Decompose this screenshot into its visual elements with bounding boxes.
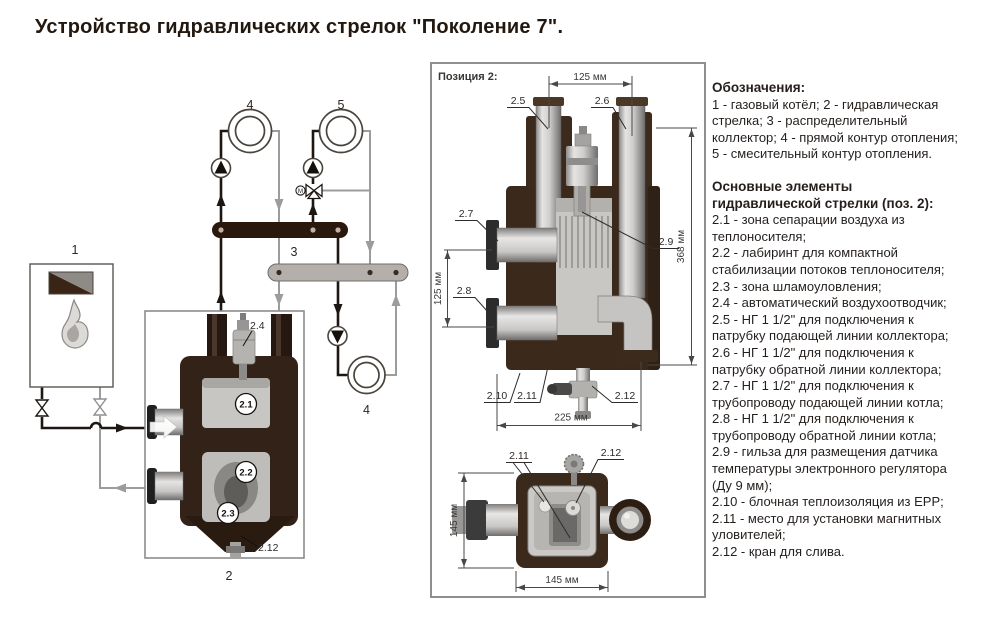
legend-item: 2.4 - автоматический воздухоотводчик; <box>712 295 964 312</box>
boiler-label: 1 <box>72 243 79 257</box>
callout-2-11: 2.11 <box>517 390 537 402</box>
circuit-4-top-label: 4 <box>247 98 254 112</box>
bottom-view <box>452 455 651 569</box>
collector-label: 3 <box>291 245 298 259</box>
circuit-4-bottom-label: 4 <box>363 403 370 417</box>
panel-title: Позиция 2: <box>438 71 498 83</box>
callout-2-12-front: 2.12 <box>615 390 636 402</box>
dim-225-bottom: 225 мм <box>554 413 587 424</box>
callout-2-12-bottom: 2.12 <box>601 447 622 459</box>
drain-valve-icon <box>547 368 597 419</box>
legend-heading-designations: Обозначения: <box>712 80 964 97</box>
legend-item: 2.2 - лабиринт для компактной стабилизац… <box>712 245 964 278</box>
dim-368-right: 368 мм <box>676 230 687 263</box>
legend-item: 2.11 - место для установки магнитных уло… <box>712 511 964 544</box>
callout-2-8: 2.8 <box>457 285 472 297</box>
callout-2-12: 2.12 <box>258 542 279 554</box>
supply-manifold <box>212 222 348 238</box>
legend-item: 2.12 - кран для слива. <box>712 544 964 561</box>
separator-label: 2 <box>226 569 233 583</box>
legend-heading-elements: Основные элементы гидравлической стрелки… <box>712 179 964 212</box>
legend-item: 2.9 - гильза для размещения датчика темп… <box>712 444 964 494</box>
valve-motor-label: М <box>298 189 303 195</box>
callout-2-5: 2.5 <box>511 95 526 107</box>
valve-icon <box>36 399 106 416</box>
radiator-circuit-5 <box>320 110 363 153</box>
page-title: Устройство гидравлических стрелок "Покол… <box>35 16 563 39</box>
callout-2-3: 2.3 <box>221 509 234 520</box>
legend-designations-text: 1 - газовый котёл; 2 - гидравлическая ст… <box>712 97 964 163</box>
callout-2-2: 2.2 <box>239 468 252 479</box>
legend-item: 2.10 - блочная теплоизоляция из EPP; <box>712 494 964 511</box>
callout-2-9: 2.9 <box>659 236 674 248</box>
legend-item: 2.6 - НГ 1 1/2" для подключения к патруб… <box>712 345 964 378</box>
system-schematic: 3 <box>0 58 430 603</box>
radiator-circuit-bottom-4 <box>348 357 385 394</box>
legend-item: 2.3 - зона шламоуловления; <box>712 279 964 296</box>
drawing-panel: Позиция 2: <box>430 62 706 598</box>
callout-2-6: 2.6 <box>595 95 610 107</box>
technical-drawing: Позиция 2: <box>432 64 704 596</box>
callout-2-11-bottom: 2.11 <box>509 450 529 462</box>
legend: Обозначения: 1 - газовый котёл; 2 - гидр… <box>712 80 964 561</box>
callout-2-7: 2.7 <box>459 208 474 220</box>
return-collector <box>268 264 408 281</box>
dim-125-top: 125 мм <box>573 72 606 83</box>
dim-145-left: 145 мм <box>449 504 460 537</box>
dim-145-bottom: 145 мм <box>545 575 578 586</box>
legend-item: 2.5 - НГ 1 1/2" для подключения к патруб… <box>712 312 964 345</box>
dim-125-left: 125 мм <box>433 272 444 305</box>
radiator-circuit-top-4 <box>229 110 272 153</box>
air-vent-icon <box>239 362 247 380</box>
legend-item: 2.7 - НГ 1 1/2" для подключения к трубоп… <box>712 378 964 411</box>
boiler-symbol <box>30 264 113 387</box>
front-view <box>486 97 660 419</box>
callout-2-1: 2.1 <box>239 400 253 411</box>
callout-2-4: 2.4 <box>250 320 265 332</box>
circuit-5-label: 5 <box>338 98 345 112</box>
page: Устройство гидравлических стрелок "Покол… <box>0 0 1000 630</box>
callout-2-10: 2.10 <box>487 390 508 402</box>
legend-item: 2.1 - зона сепарации воздуха из теплонос… <box>712 212 964 245</box>
separator-photo: 2.1 2.2 2.3 2.4 2.12 <box>145 311 304 558</box>
legend-item: 2.8 - НГ 1 1/2" для подключения к трубоп… <box>712 411 964 444</box>
